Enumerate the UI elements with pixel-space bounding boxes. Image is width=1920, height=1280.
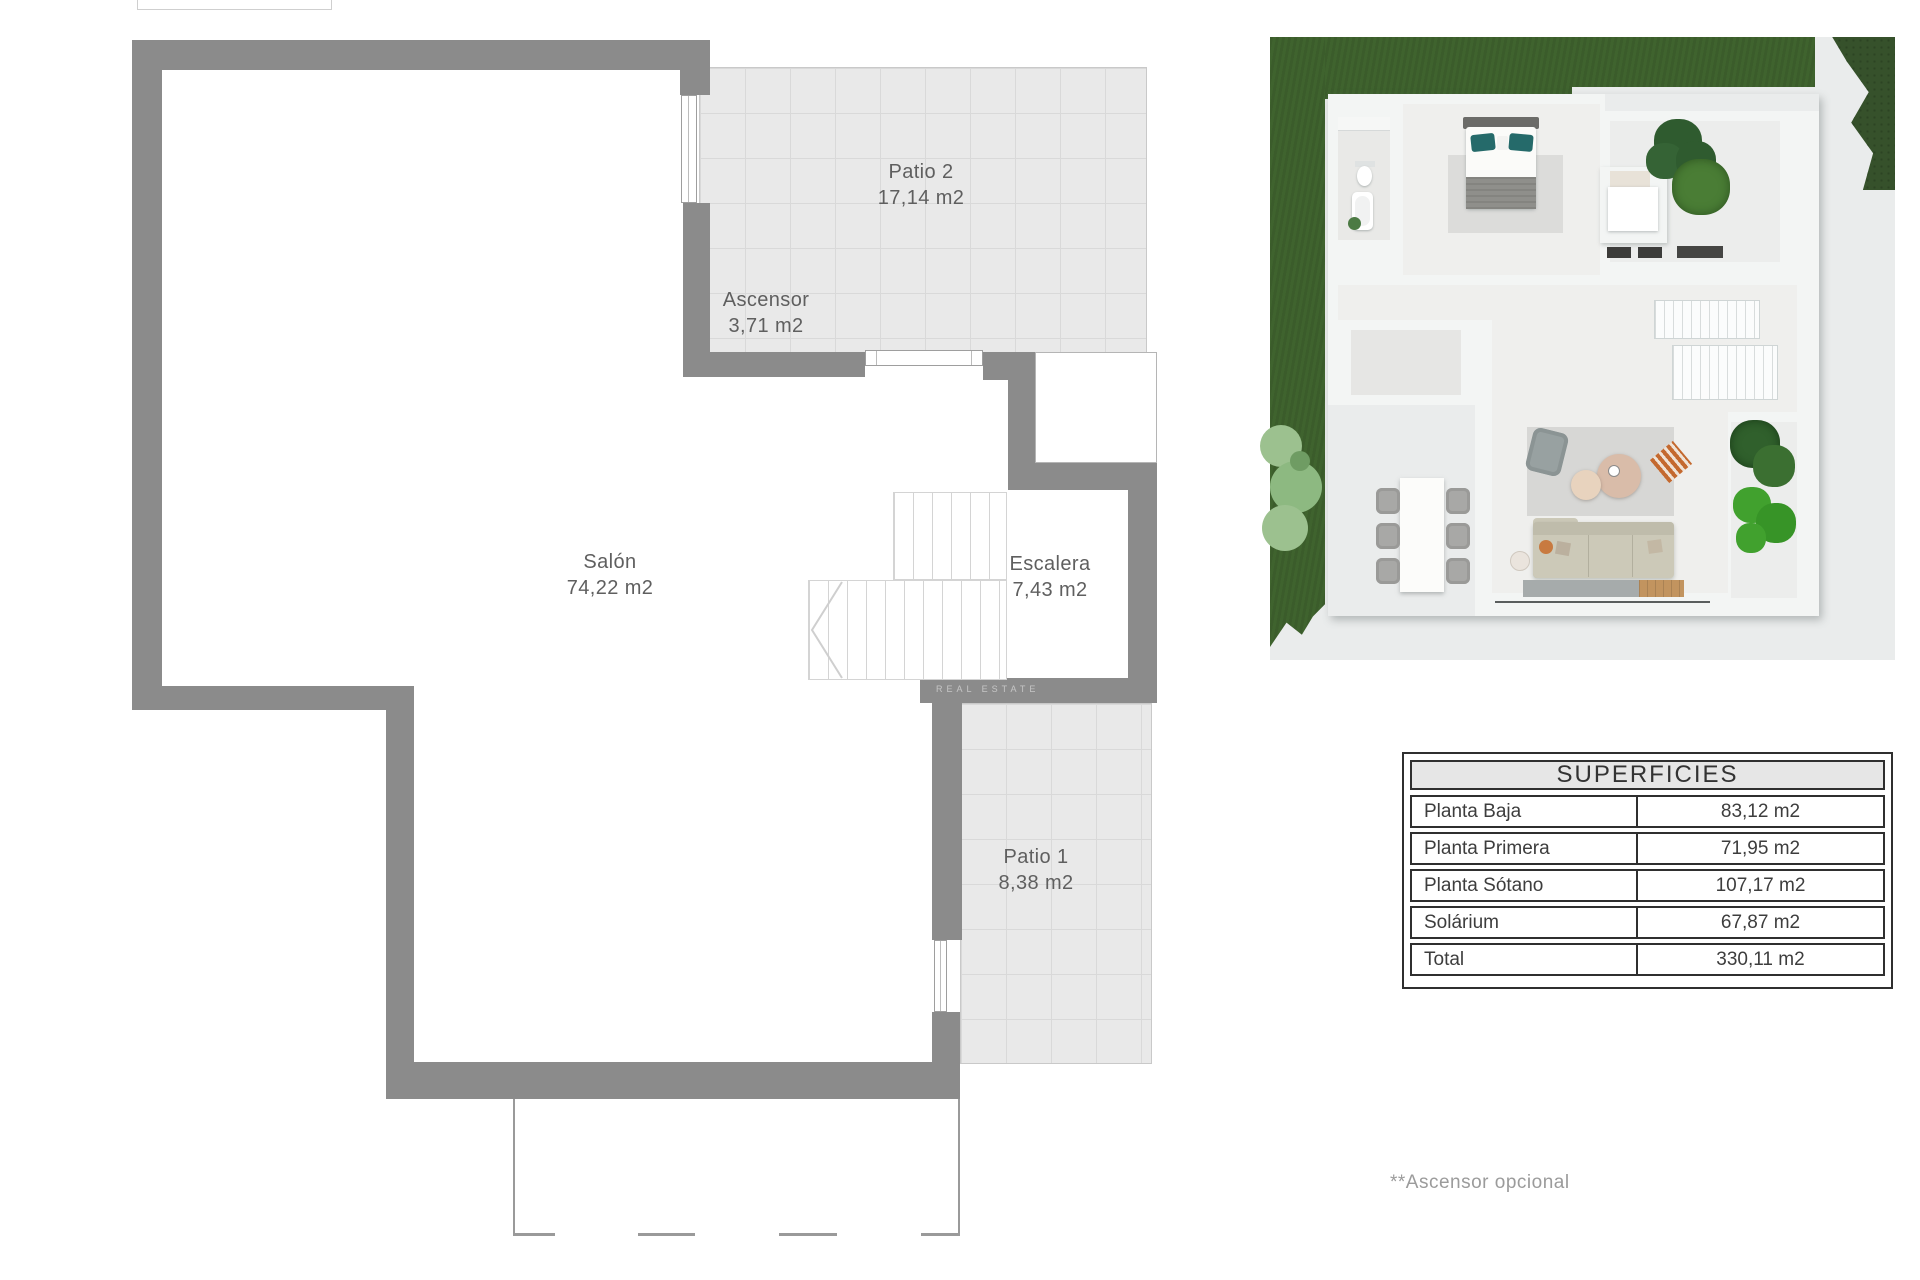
patio1-bright-plant — [1736, 523, 1766, 553]
patio1-grass-plant — [1753, 445, 1795, 487]
door-jamb — [971, 351, 972, 365]
room-area: 7,43 m2 — [1009, 578, 1090, 604]
window-mullion — [688, 96, 689, 202]
stair-upper-run — [893, 492, 1007, 580]
room-area: 3,71 m2 — [723, 314, 810, 340]
patio2-grass-plant — [1672, 159, 1730, 215]
stair-direction-arrow — [806, 578, 846, 682]
row-value: 67,87 m2 — [1638, 908, 1883, 937]
room-name: Patio 1 — [998, 845, 1073, 871]
footnote-ascensor-opcional: **Ascensor opcional — [1390, 1172, 1570, 1194]
row-value: 71,95 m2 — [1638, 834, 1883, 863]
coffee-table-large — [1597, 454, 1641, 498]
room-label-salon: Salón 74,22 m2 — [567, 550, 654, 601]
wall-patio1-left-upper — [932, 703, 962, 940]
wall-passage-b — [1008, 380, 1035, 465]
bathroom-counter — [1338, 117, 1390, 131]
terrace-line-right — [958, 1099, 960, 1235]
row-label: Solárium — [1412, 908, 1638, 937]
bed-pillow-right — [1508, 133, 1533, 152]
wall-escalera-top — [1008, 463, 1157, 490]
room-area: 17,14 m2 — [878, 186, 965, 212]
room-label-patio2: Patio 2 17,14 m2 — [878, 160, 965, 211]
window-patio2 — [681, 95, 697, 203]
table-title: SUPERFICIES — [1410, 760, 1885, 790]
table-decor — [1608, 465, 1620, 477]
storage-room-floor — [1351, 330, 1461, 395]
window-patio1 — [934, 940, 947, 1012]
side-table-round — [1510, 551, 1530, 571]
dining-chair — [1376, 488, 1400, 514]
wall-bottom — [386, 1062, 960, 1099]
dining-chair — [1446, 558, 1470, 584]
room-label-ascensor: Ascensor 3,71 m2 — [723, 288, 810, 339]
room-name: Escalera — [1009, 552, 1090, 578]
room-name: Salón — [567, 550, 654, 576]
sofa-seat-divider — [1588, 535, 1589, 577]
bush-small — [1290, 451, 1310, 471]
toilet-bowl — [1357, 166, 1372, 186]
lift-shaft-inner — [1608, 187, 1658, 231]
render-3d-top-view — [1270, 37, 1895, 660]
wall-ascensor-bottom — [683, 352, 865, 377]
bed-pillow-left — [1470, 133, 1496, 152]
row-label: Planta Primera — [1412, 834, 1638, 863]
sofa-seat-divider — [1632, 535, 1633, 577]
grass-left-column — [1270, 37, 1325, 647]
superficies-table: SUPERFICIES Planta Baja 83,12 m2 Planta … — [1402, 752, 1893, 989]
room-name: Patio 2 — [878, 160, 965, 186]
bed-blanket — [1466, 177, 1536, 209]
row-value: 330,11 m2 — [1638, 945, 1883, 974]
table-row: Solárium 67,87 m2 — [1410, 906, 1885, 939]
room-area: 8,38 m2 — [998, 871, 1073, 897]
wall-patio2-left — [683, 203, 710, 377]
stairs-lower-flight — [1672, 345, 1778, 400]
room-label-patio1: Patio 1 8,38 m2 — [998, 845, 1073, 896]
wall-left — [132, 40, 162, 710]
terrace-dash — [638, 1233, 695, 1236]
table-row: Total 330,11 m2 — [1410, 943, 1885, 976]
dining-chair — [1376, 523, 1400, 549]
sofa-pillow-pattern — [1555, 541, 1571, 556]
sofa-back-cushions — [1533, 522, 1674, 535]
skylight-frame — [1677, 246, 1723, 258]
dining-table — [1400, 478, 1444, 592]
bed-pillow-center — [1497, 136, 1508, 150]
room-name: Ascensor — [723, 288, 810, 314]
page: REAL ESTATE Patio 2 17,14 m2 — [0, 0, 1920, 1280]
table-row: Planta Primera 71,95 m2 — [1410, 832, 1885, 865]
grass-top-left — [1322, 37, 1572, 99]
wall-left-step-vertical — [386, 710, 414, 1099]
room-label-escalera: Escalera 7,43 m2 — [1009, 552, 1090, 603]
wall-top-cap — [680, 70, 710, 95]
row-label: Planta Sótano — [1412, 871, 1638, 900]
sofa-pillow-orange — [1539, 540, 1553, 554]
sliding-door-line — [1495, 601, 1710, 603]
row-label: Total — [1412, 945, 1638, 974]
wood-floor-strip — [1639, 580, 1684, 597]
wall-passage-a — [983, 352, 1035, 380]
paving-notch-top-right — [1605, 94, 1819, 111]
table-row: Planta Baja 83,12 m2 — [1410, 795, 1885, 828]
door-ascensor-passage — [865, 350, 983, 366]
real-estate-watermark: REAL ESTATE — [936, 684, 1039, 694]
door-jamb — [876, 351, 877, 365]
stairs-upper-flight — [1654, 300, 1760, 339]
wall-top — [132, 40, 710, 70]
dining-chair — [1446, 488, 1470, 514]
dining-chair — [1446, 523, 1470, 549]
grass-top-right — [1572, 37, 1815, 87]
terrace-line-left — [513, 1099, 515, 1235]
floor-plan-2d: REAL ESTATE Patio 2 17,14 m2 — [0, 0, 1200, 1280]
wall-patio1-left-lower — [932, 1012, 960, 1062]
door-lintel — [1638, 247, 1662, 258]
terrace-dash — [779, 1233, 837, 1236]
room-area: 74,22 m2 — [567, 576, 654, 602]
terrace-dash — [921, 1233, 960, 1236]
lift-shaft-box — [1610, 171, 1650, 187]
hedge-right — [1822, 37, 1895, 190]
sofa-pillow-right — [1647, 539, 1663, 554]
dining-chair — [1376, 558, 1400, 584]
tv-console — [1523, 580, 1641, 597]
wall-left-step-cap — [132, 686, 414, 710]
void-opening — [1035, 352, 1157, 463]
row-label: Planta Baja — [1412, 797, 1638, 826]
terrace-dash — [513, 1233, 555, 1236]
row-value: 83,12 m2 — [1638, 797, 1883, 826]
coffee-table-small — [1571, 470, 1601, 500]
window-mullion — [940, 941, 941, 1011]
table-row: Planta Sótano 107,17 m2 — [1410, 869, 1885, 902]
wall-escalera-right — [1128, 490, 1157, 703]
door-lintel — [1607, 247, 1631, 258]
bush — [1262, 505, 1308, 551]
row-value: 107,17 m2 — [1638, 871, 1883, 900]
bathroom-plant — [1348, 217, 1361, 230]
